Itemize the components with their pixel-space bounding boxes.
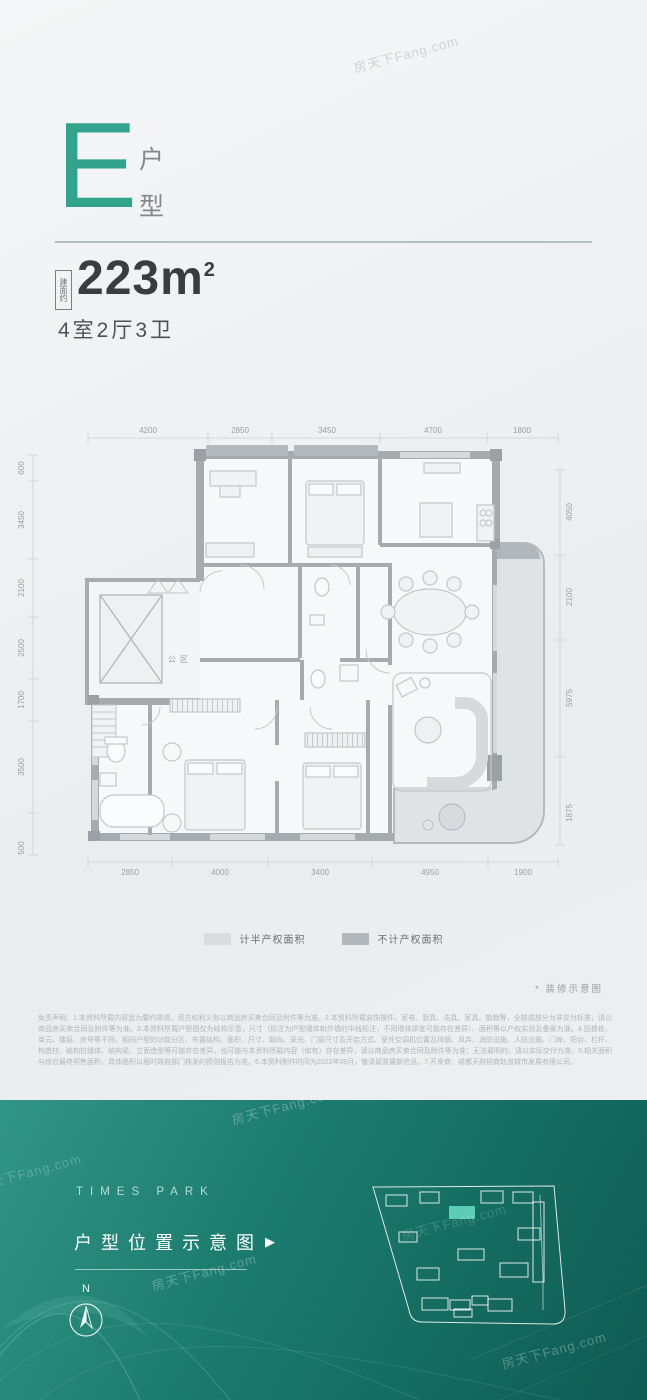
svg-text:2500: 2500 <box>17 639 26 657</box>
legend-item: 不计产权面积 <box>342 931 444 946</box>
svg-text:5975: 5975 <box>565 689 574 707</box>
bathtub <box>100 795 164 827</box>
area-superscript: 2 <box>204 259 216 281</box>
elevator <box>100 595 162 683</box>
svg-text:3400: 3400 <box>311 868 329 877</box>
svg-text:600: 600 <box>17 461 26 475</box>
svg-text:2850: 2850 <box>231 426 249 435</box>
svg-text:3450: 3450 <box>318 426 336 435</box>
legend-label: 不计产权面积 <box>378 931 444 946</box>
area-value: 223m2 <box>77 255 216 303</box>
svg-text:2100: 2100 <box>565 588 574 606</box>
compass-n-label: N <box>82 1283 90 1295</box>
floorplan-drawing: 公区 <box>0 415 647 885</box>
kitchen-island <box>420 503 452 537</box>
public-area-label: 公区 <box>168 655 192 664</box>
area-prefix-box: 建面约 <box>55 270 72 310</box>
highlighted-building <box>449 1206 475 1219</box>
compass-needle <box>80 1306 86 1328</box>
svg-text:4950: 4950 <box>421 868 439 877</box>
unit-type-char-2: 型 <box>139 187 165 223</box>
area-number: 223m <box>77 252 204 305</box>
desk <box>210 471 256 486</box>
svg-text:3500: 3500 <box>17 758 26 776</box>
svg-text:1800: 1800 <box>513 426 531 435</box>
cta-underline <box>75 1269 247 1270</box>
svg-text:4200: 4200 <box>139 426 157 435</box>
rooms-label: 4室2厅3卫 <box>58 314 174 344</box>
site-plan <box>350 1150 647 1370</box>
svg-text:4050: 4050 <box>565 503 574 521</box>
disclaimer-text: 免责声明：1.本资料所载内容旨为要约邀请，双方权利义务以商品房买卖合同及附件等为… <box>38 1013 612 1068</box>
area-legend: 计半产权面积 不计产权面积 <box>0 931 647 946</box>
header-divider <box>55 241 592 243</box>
compass: N <box>56 1278 116 1348</box>
svg-text:3450: 3450 <box>17 511 26 529</box>
decoration-note: * 装修示意图 <box>535 981 603 995</box>
svg-text:2850: 2850 <box>121 868 139 877</box>
legend-label: 计半产权面积 <box>240 931 306 946</box>
watermark: 房天下Fang.com <box>351 30 460 76</box>
svg-text:1875: 1875 <box>565 804 574 822</box>
location-cta[interactable]: 户型位置示意图 ▶ <box>74 1229 275 1255</box>
svg-text:1700: 1700 <box>17 691 26 709</box>
legend-swatch-none <box>342 933 369 945</box>
arrow-right-icon: ▶ <box>265 1234 275 1250</box>
legend-item: 计半产权面积 <box>204 931 306 946</box>
unit-type-char-1: 户 <box>139 140 165 176</box>
plant <box>439 804 465 830</box>
legend-swatch-half <box>204 933 231 945</box>
svg-text:2100: 2100 <box>17 579 26 597</box>
cta-label: 户型位置示意图 <box>74 1229 263 1255</box>
svg-text:500: 500 <box>17 841 26 855</box>
toilet <box>315 578 329 596</box>
footer-panel: TIMES PARK 户型位置示意图 ▶ N <box>0 1100 647 1400</box>
floorplan-flyer-page: 房天下Fang.com 房天下Fang.com E 户 型 建面约 223m2 … <box>0 0 647 1400</box>
toilet <box>311 670 325 688</box>
svg-text:4000: 4000 <box>211 868 229 877</box>
dining-table <box>394 589 466 635</box>
brand-name: TIMES PARK <box>76 1186 215 1198</box>
svg-text:4700: 4700 <box>424 426 442 435</box>
svg-text:1900: 1900 <box>514 868 532 877</box>
unit-letter: E <box>56 104 137 226</box>
